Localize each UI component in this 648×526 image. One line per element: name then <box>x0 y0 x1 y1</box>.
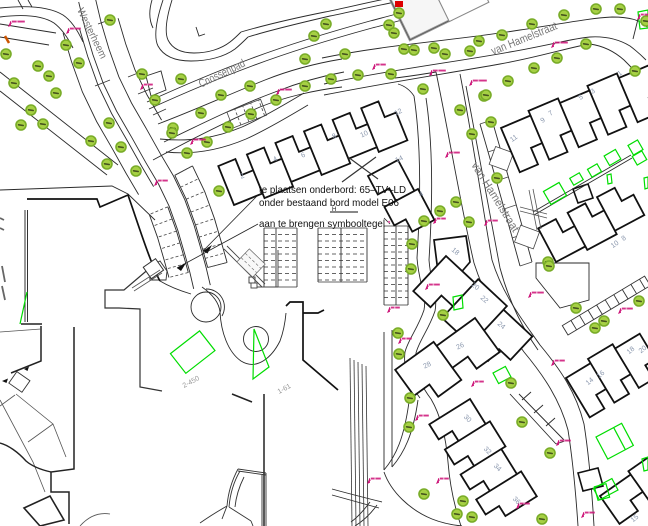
svg-text:te plaatsen onderbord: 65–TV–L: te plaatsen onderbord: 65–TV–LD <box>259 184 406 196</box>
svg-text:onder bestaand bord model E06: onder bestaand bord model E06 <box>259 197 399 209</box>
svg-text:H: H <box>332 207 336 213</box>
svg-text:aan te brengen symbooltegel: aan te brengen symbooltegel <box>259 218 385 230</box>
